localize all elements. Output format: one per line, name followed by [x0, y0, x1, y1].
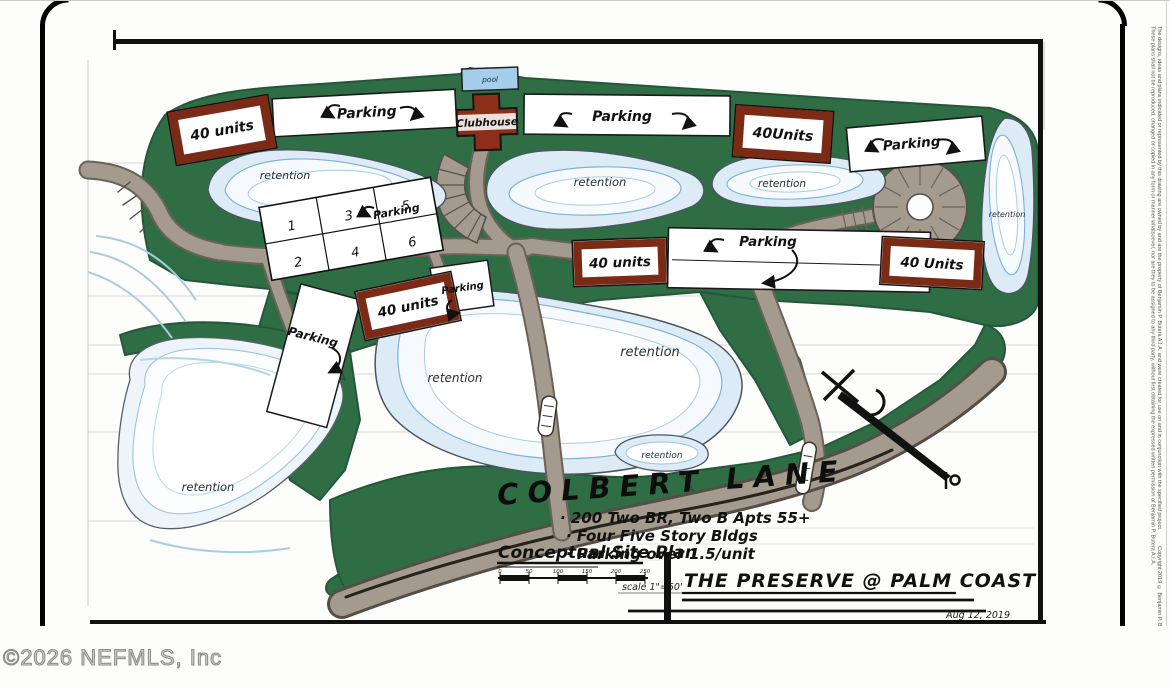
side-copyright-upper: The designs, ideas and plans indicated o… — [1156, 26, 1162, 530]
site-plan-drawing: 1 3 5 2 4 6 40 units 40Units 40 units 40 — [0, 0, 1170, 689]
parking-label: Parking — [336, 103, 397, 122]
pool: pool — [462, 67, 519, 91]
project-title: THE PRESERVE @ PALM COAST — [684, 570, 1037, 592]
note-line: · 200 Two BR, Two B Apts 55+ — [560, 509, 811, 527]
retention-label: retention — [428, 371, 483, 385]
plan-date: Aug 12, 2019 — [945, 610, 1010, 621]
retention-label: retention — [182, 480, 235, 494]
retention-label: retention — [620, 345, 680, 360]
retention-label: retention — [641, 451, 683, 461]
retention-label: retention — [989, 210, 1026, 219]
building-label: 40 units — [588, 254, 651, 272]
clubhouse-label: Clubhouse — [456, 116, 518, 130]
retention-label: retention — [574, 175, 627, 189]
building-label: 40 Units — [899, 254, 964, 273]
parking-label: Parking — [739, 234, 797, 250]
page-edge-right — [1166, 0, 1167, 689]
parking-label: Parking — [592, 109, 652, 125]
page-edge-top — [0, 0, 1170, 1]
scale-note: scale 1"=50' — [622, 582, 683, 593]
mls-watermark: ©2026 NEFMLS, Inc — [3, 645, 222, 671]
side-copyright-text: The designs, ideas and plans indicated o… — [1136, 26, 1162, 666]
retention-label: retention — [260, 169, 310, 182]
retention-label: retention — [758, 178, 806, 190]
pool-label: pool — [481, 75, 499, 85]
scanned-site-plan-page: 1 3 5 2 4 6 40 units 40Units 40 units 40 — [0, 0, 1170, 689]
